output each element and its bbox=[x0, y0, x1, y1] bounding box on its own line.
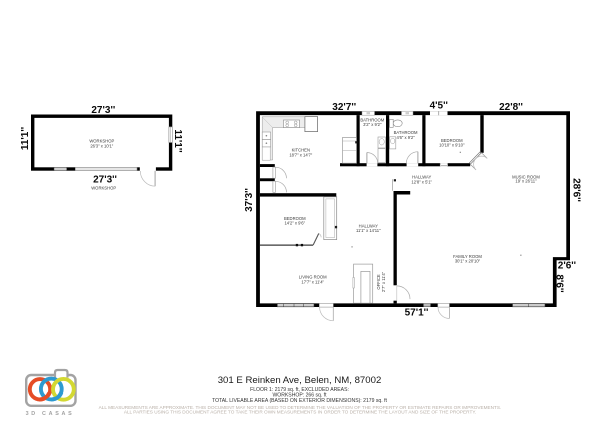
svg-text:37'3'': 37'3'' bbox=[244, 188, 255, 212]
svg-text:17'7" x 11'4": 17'7" x 11'4" bbox=[301, 279, 324, 284]
svg-text:28'6'': 28'6'' bbox=[570, 178, 581, 202]
svg-text:11'1" x 14'11": 11'1" x 14'11" bbox=[356, 228, 381, 233]
svg-text:27'3'': 27'3'' bbox=[93, 174, 117, 185]
svg-text:26'3" x 10'1": 26'3" x 10'1" bbox=[90, 143, 113, 148]
svg-text:4'6" x 9'2": 4'6" x 9'2" bbox=[396, 135, 415, 140]
svg-text:WORKSHOP: WORKSHOP bbox=[91, 186, 116, 191]
svg-text:30'1" x 20'10": 30'1" x 20'10" bbox=[455, 259, 481, 264]
svg-text:301 E Reinken Ave, Belen, NM,: 301 E Reinken Ave, Belen, NM, 87002 bbox=[218, 375, 382, 386]
svg-text:18'7" x 14'7": 18'7" x 14'7" bbox=[289, 152, 312, 157]
svg-text:4'5'': 4'5'' bbox=[430, 101, 448, 112]
svg-text:27'3'': 27'3'' bbox=[91, 105, 115, 116]
svg-text:2'6'': 2'6'' bbox=[558, 260, 576, 271]
svg-text:TOTAL LIVEABLE AREA (BASED ON: TOTAL LIVEABLE AREA (BASED ON EXTERIOR D… bbox=[212, 398, 387, 404]
svg-text:3D CASAS: 3D CASAS bbox=[26, 411, 75, 417]
svg-text:2'7" x 11'4": 2'7" x 11'4" bbox=[381, 271, 386, 292]
svg-text:10'10" x 9'10": 10'10" x 9'10" bbox=[439, 142, 465, 147]
svg-text:ALL PARTIES USING THIS DOCUMEN: ALL PARTIES USING THIS DOCUMENT AGREE TO… bbox=[124, 409, 477, 414]
svg-text:19' x 26'11": 19' x 26'11" bbox=[515, 178, 537, 183]
svg-text:3'2" x 9'2": 3'2" x 9'2" bbox=[363, 122, 382, 127]
svg-text:22'8'': 22'8'' bbox=[499, 102, 523, 113]
svg-text:32'7'': 32'7'' bbox=[332, 102, 356, 113]
svg-text:8'6'': 8'6'' bbox=[554, 274, 565, 292]
svg-text:11'1'': 11'1'' bbox=[172, 129, 183, 152]
svg-text:14'2" x 9'6": 14'2" x 9'6" bbox=[284, 221, 305, 226]
svg-text:57'1'': 57'1'' bbox=[405, 307, 429, 318]
svg-text:11'1'': 11'1'' bbox=[20, 127, 31, 150]
svg-text:12'8" x 5'1": 12'8" x 5'1" bbox=[411, 180, 432, 185]
